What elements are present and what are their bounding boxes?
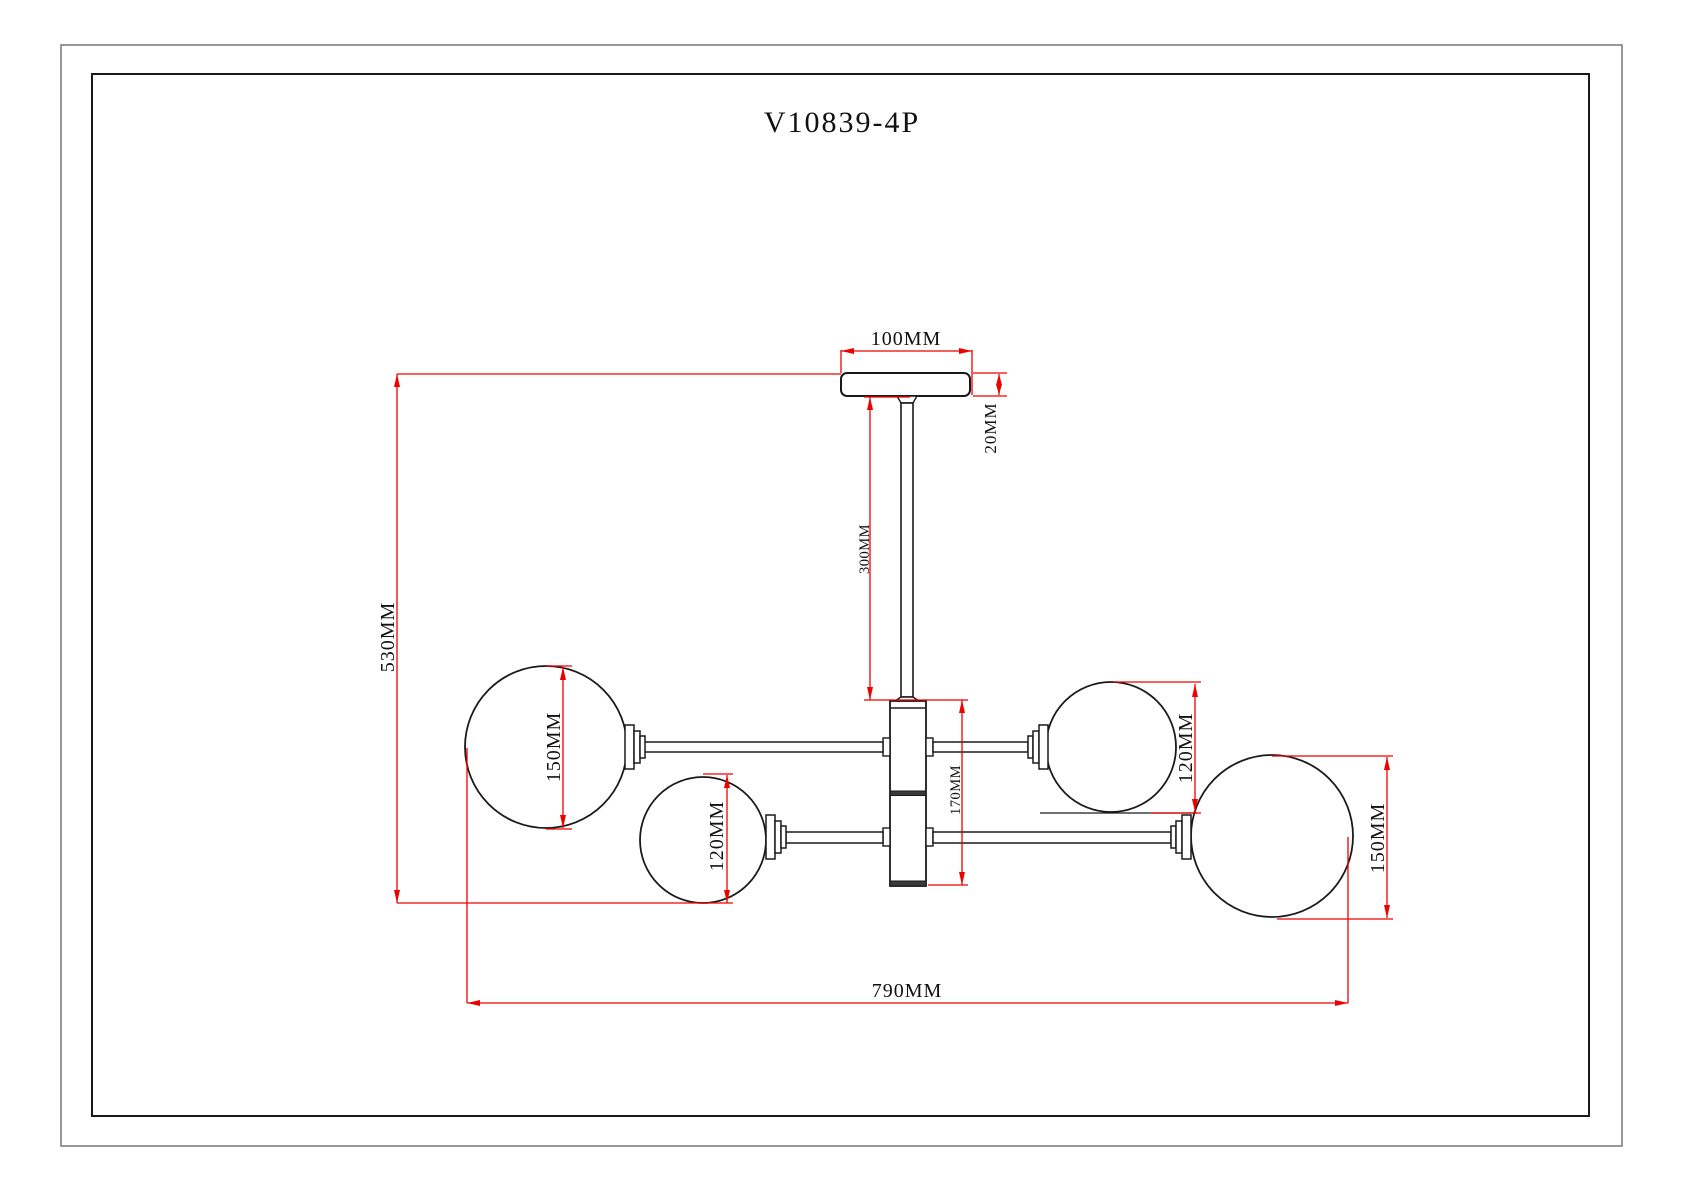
ceiling-canopy xyxy=(841,373,970,396)
inner-border xyxy=(92,74,1589,1116)
fitter-plate xyxy=(1182,815,1191,859)
dim-label-center-body-height: 170MM xyxy=(948,765,964,815)
arrow-up xyxy=(959,700,965,713)
connector-upper-right xyxy=(926,738,933,756)
fitter-right-large-globe xyxy=(1171,815,1191,859)
drawing-page: V10839-4P xyxy=(0,0,1684,1190)
arrow-down xyxy=(959,872,965,885)
fitter-neck xyxy=(640,736,645,758)
connector-upper-left xyxy=(883,738,890,756)
arrow-down xyxy=(1384,905,1390,918)
fitter-plate xyxy=(766,815,775,859)
arrow-down xyxy=(996,384,1002,395)
fitter-step xyxy=(634,731,640,763)
globe-right-small xyxy=(1046,682,1176,812)
fitter-step xyxy=(775,821,781,853)
arm-lower-left xyxy=(786,832,883,843)
globe-left-small xyxy=(640,777,766,903)
dim-label-left-small-globe: 120MM xyxy=(706,801,728,872)
dim-label-overall-height: 530MM xyxy=(377,602,399,673)
technical-drawing-canvas: V10839-4P xyxy=(0,0,1684,1190)
dim-label-overall-width: 790MM xyxy=(872,980,943,1002)
fitter-step xyxy=(1176,821,1182,853)
arrow-left xyxy=(467,1000,480,1006)
center-body-bottom-cap xyxy=(890,881,926,886)
arrow-up xyxy=(996,374,1002,385)
arrow-right xyxy=(959,348,972,354)
connector-lower-right xyxy=(926,828,933,846)
fitter-left-large-globe xyxy=(625,725,645,769)
arrow-up xyxy=(1384,757,1390,770)
dim-label-right-small-globe: 120MM xyxy=(1175,713,1197,784)
dim-label-canopy-thickness: 20MM xyxy=(981,402,1000,453)
fitter-step xyxy=(1033,731,1039,763)
center-body-mid-joint xyxy=(890,791,926,796)
fitter-left-small-globe xyxy=(766,815,786,859)
fitter-right-small-globe xyxy=(1028,725,1048,769)
arrow-up xyxy=(394,374,400,387)
arrow-down xyxy=(394,890,400,903)
fitter-plate xyxy=(1039,725,1048,769)
arm-upper-right xyxy=(933,742,1028,752)
arrow-up xyxy=(1192,684,1198,697)
fixture-drawing xyxy=(465,373,1353,917)
arrow-right xyxy=(1335,1000,1348,1006)
connector-lower-left xyxy=(883,828,890,846)
fitter-plate xyxy=(625,725,634,769)
arrow-left xyxy=(841,348,854,354)
outer-border xyxy=(61,45,1622,1146)
fitter-neck xyxy=(781,826,786,848)
border-frame xyxy=(61,45,1622,1146)
globe-right-large xyxy=(1191,755,1353,917)
arrow-up xyxy=(867,397,873,410)
dim-canopy-thickness: 20MM xyxy=(973,373,1007,454)
dim-label-right-large-globe: 150MM xyxy=(1367,803,1389,874)
arm-lower-right xyxy=(933,832,1171,843)
drawing-title: V10839-4P xyxy=(764,106,920,139)
arm-upper-left xyxy=(644,742,883,752)
dim-label-stem-length: 300MM xyxy=(857,524,873,574)
dim-label-left-large-globe: 150MM xyxy=(543,712,565,783)
stem-rod xyxy=(901,403,913,697)
arrow-down xyxy=(867,687,873,700)
dim-label-canopy-width: 100MM xyxy=(871,328,942,350)
